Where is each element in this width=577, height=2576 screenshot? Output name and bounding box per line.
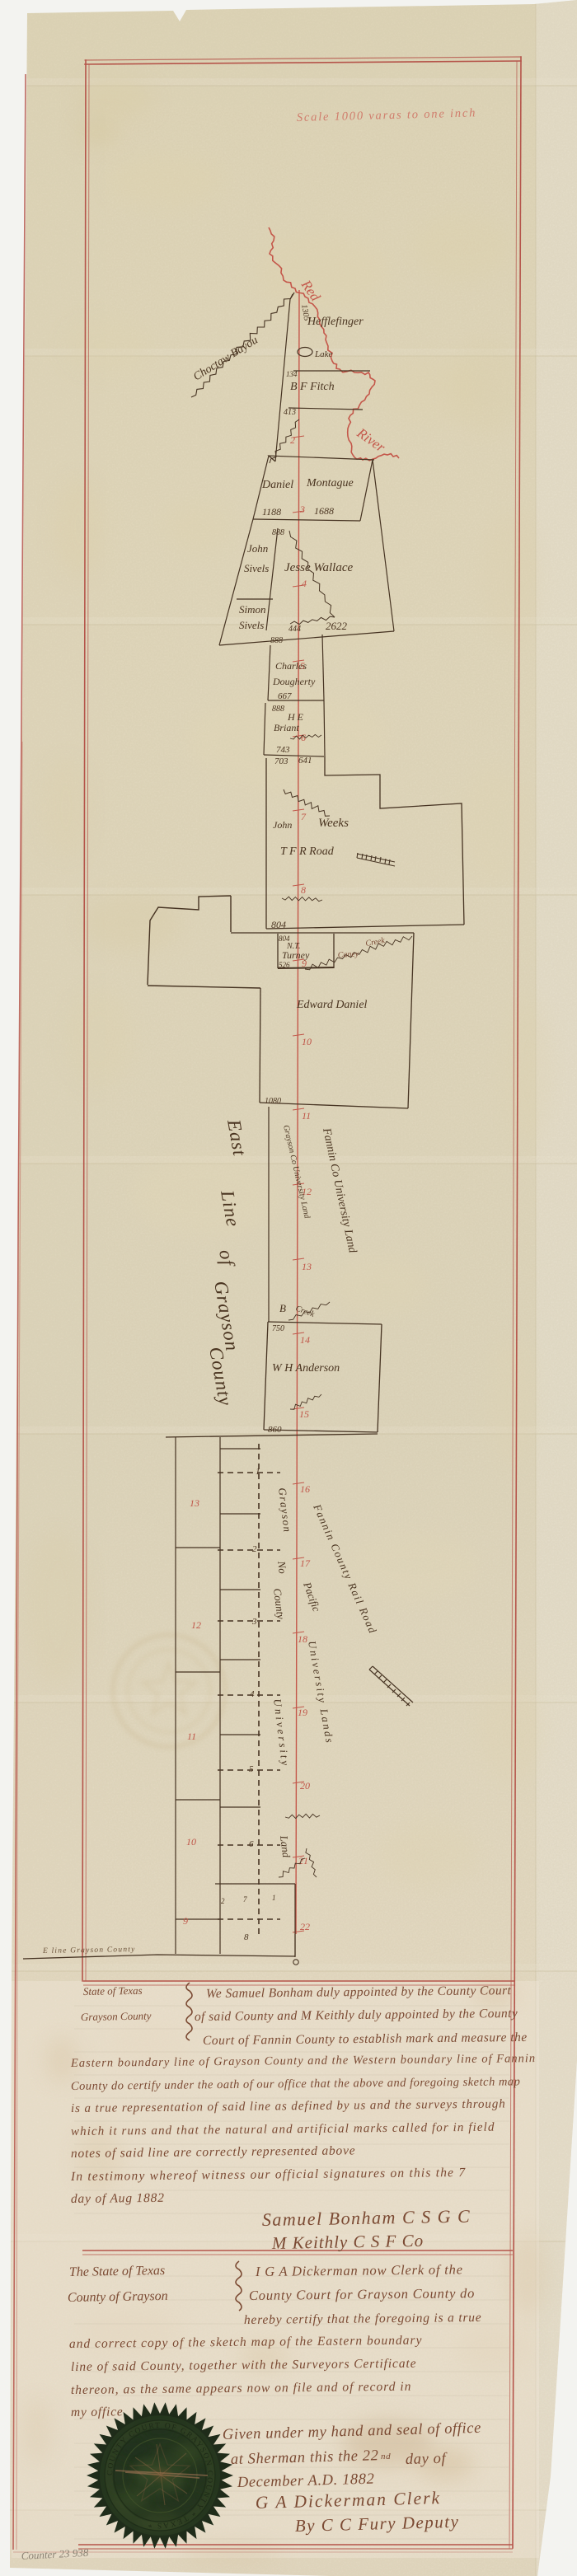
svg-text:The State of Texas: The State of Texas [69, 2264, 166, 2279]
svg-text:20: 20 [300, 1780, 310, 1791]
svg-text:13: 13 [190, 1497, 199, 1509]
svg-text:8: 8 [301, 884, 306, 896]
svg-text:Montague: Montague [306, 477, 354, 489]
svg-text:Weeks: Weeks [318, 817, 349, 830]
svg-text:7: 7 [301, 811, 307, 822]
svg-text:5: 5 [249, 1764, 254, 1774]
svg-text:day of Aug 1882: day of Aug 1882 [71, 2191, 165, 2206]
svg-text:Hefflefinger: Hefflefinger [307, 316, 364, 328]
svg-text:my office: my office [71, 2405, 124, 2419]
svg-text:2: 2 [252, 1544, 257, 1554]
svg-text:10: 10 [302, 1036, 312, 1047]
svg-text:nd: nd [381, 2452, 391, 2461]
svg-text:2622: 2622 [326, 620, 348, 632]
svg-text:4: 4 [250, 1689, 255, 1699]
svg-text:Samuel Bonham C S G C: Samuel Bonham C S G C [262, 2206, 471, 2230]
svg-text:12: 12 [191, 1619, 201, 1631]
svg-text:8: 8 [244, 1932, 249, 1942]
svg-text:641: 641 [298, 756, 312, 766]
svg-text:16: 16 [300, 1483, 310, 1495]
svg-text:13: 13 [302, 1261, 312, 1272]
svg-text:B F Fitch: B F Fitch [290, 381, 335, 393]
svg-text:I G A Dickerman now Clerk of: I G A Dickerman now Clerk of the [255, 2261, 463, 2279]
svg-text:Edward Daniel: Edward Daniel [296, 999, 368, 1011]
svg-text:W H Anderson: W H Anderson [272, 1362, 340, 1375]
svg-text:19: 19 [298, 1707, 307, 1718]
svg-text:1688: 1688 [314, 505, 334, 517]
svg-text:9: 9 [183, 1915, 188, 1927]
svg-text:State of Texas: State of Texas [83, 1984, 143, 1998]
svg-text:Simon: Simon [239, 603, 266, 616]
svg-text:7: 7 [243, 1895, 247, 1904]
svg-text:21: 21 [298, 1855, 308, 1866]
svg-text:14: 14 [300, 1334, 310, 1346]
svg-text:B: B [279, 1302, 286, 1314]
svg-text:Charles: Charles [275, 660, 307, 672]
svg-text:11: 11 [187, 1731, 196, 1742]
svg-text:888: 888 [272, 528, 284, 537]
svg-text:1: 1 [272, 1894, 276, 1902]
svg-text:John: John [273, 819, 292, 831]
svg-text:3: 3 [251, 1617, 257, 1627]
svg-text:2: 2 [290, 434, 295, 446]
svg-text:413: 413 [284, 408, 296, 417]
svg-text:day of: day of [406, 2451, 448, 2468]
svg-text:6: 6 [249, 1839, 254, 1849]
svg-text:750: 750 [272, 1324, 284, 1333]
svg-text:M Keithly C S F Co: M Keithly C S F Co [271, 2231, 425, 2253]
svg-text:Caney: Caney [337, 949, 359, 960]
svg-text:888: 888 [272, 705, 284, 714]
svg-text:E line Grayson County: E line Grayson County [42, 1946, 136, 1955]
svg-text:804: 804 [271, 919, 286, 930]
svg-text:3: 3 [299, 503, 305, 515]
svg-text:T F R Road: T F R Road [280, 845, 335, 858]
svg-text:11: 11 [302, 1110, 311, 1122]
svg-text:703: 703 [274, 756, 288, 766]
svg-text:22: 22 [300, 1921, 310, 1932]
svg-text:2: 2 [221, 1897, 225, 1905]
svg-text:888: 888 [270, 636, 283, 645]
svg-text:10: 10 [186, 1836, 196, 1848]
svg-text:Daniel: Daniel [261, 479, 293, 491]
svg-text:134: 134 [286, 370, 298, 378]
svg-text:1188: 1188 [262, 506, 281, 518]
svg-text:526: 526 [279, 961, 290, 969]
svg-text:743: 743 [276, 745, 290, 755]
svg-text:18: 18 [298, 1633, 307, 1645]
svg-text:notes of said line are correct: notes of said line are correctly represe… [71, 2143, 356, 2161]
svg-text:H E: H E [287, 711, 304, 723]
svg-text:4: 4 [302, 578, 307, 589]
svg-text:444: 444 [288, 625, 301, 634]
svg-text:County Court for Grayson Count: County Court for Grayson County do [249, 2285, 475, 2303]
svg-text:No: No [275, 1560, 289, 1575]
svg-text:667: 667 [278, 691, 292, 701]
svg-text:1: 1 [256, 1467, 260, 1477]
svg-text:John: John [247, 542, 268, 555]
svg-text:Grayson County: Grayson County [81, 2010, 152, 2023]
svg-text:17: 17 [300, 1557, 311, 1569]
svg-text:15: 15 [299, 1408, 309, 1420]
svg-text:860: 860 [268, 1425, 282, 1435]
svg-text:Sivels: Sivels [244, 562, 269, 574]
svg-text:1080: 1080 [265, 1097, 281, 1106]
svg-text:County of Grayson: County of Grayson [68, 2289, 168, 2305]
svg-text:hereby certify that the forego: hereby certify that the foregoing is a t… [244, 2311, 482, 2327]
svg-text:Turney: Turney [282, 949, 310, 961]
svg-text:Lake: Lake [314, 349, 333, 359]
svg-text:Dougherty: Dougherty [272, 676, 316, 687]
svg-text:Briant: Briant [274, 722, 299, 733]
svg-text:Sivels: Sivels [239, 619, 264, 631]
svg-text:Jesse Wallace: Jesse Wallace [284, 561, 354, 574]
